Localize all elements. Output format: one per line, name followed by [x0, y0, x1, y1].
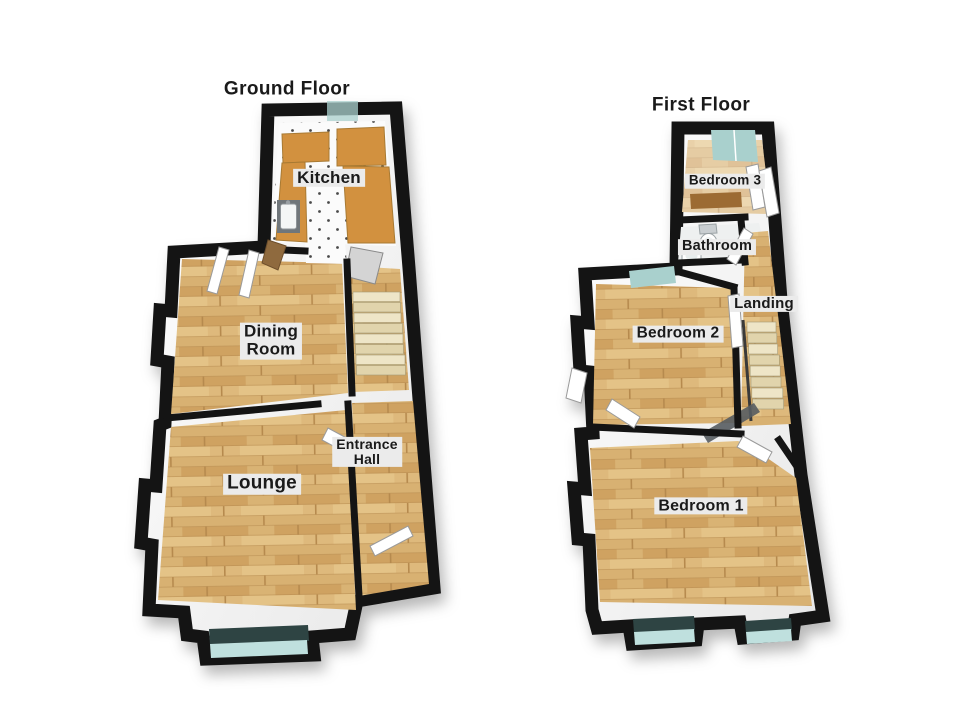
dining-room-label: Dining Room	[240, 323, 302, 360]
dining-room-label-line1: Dining	[244, 323, 298, 341]
kitchen-sink	[277, 200, 300, 233]
bedroom3-shelf	[690, 192, 742, 209]
kitchen-doorway-floor	[305, 242, 347, 264]
floorplan-image: Ground Floor Kitchen Dining Room Entranc…	[0, 0, 980, 712]
bedroom1-label: Bedroom 1	[654, 497, 747, 514]
kitchen-label: Kitchen	[293, 169, 365, 187]
first-floor-title: First Floor	[652, 96, 750, 117]
bedroom2-closet-door	[566, 368, 587, 403]
bedroom2-label: Bedroom 2	[633, 326, 724, 343]
kitchen-window	[327, 101, 358, 121]
first-floor-plan	[566, 128, 823, 645]
ground-floor-title: Ground Floor	[224, 80, 350, 101]
entrance-hall-label: Entrance Hall	[332, 437, 402, 467]
entrance-hall-label-line1: Entrance	[336, 437, 398, 452]
floorplan-drawing	[0, 0, 980, 712]
dining-room-label-line2: Room	[244, 341, 298, 359]
bedroom3-label: Bedroom 3	[685, 174, 765, 189]
ground-floor-plan	[141, 101, 434, 659]
lounge-bay-window	[209, 625, 309, 658]
landing-label: Landing	[730, 296, 798, 312]
bathroom-label: Bathroom	[678, 239, 756, 255]
entrance-hall-label-line2: Hall	[336, 452, 398, 467]
lounge-label: Lounge	[223, 474, 301, 495]
